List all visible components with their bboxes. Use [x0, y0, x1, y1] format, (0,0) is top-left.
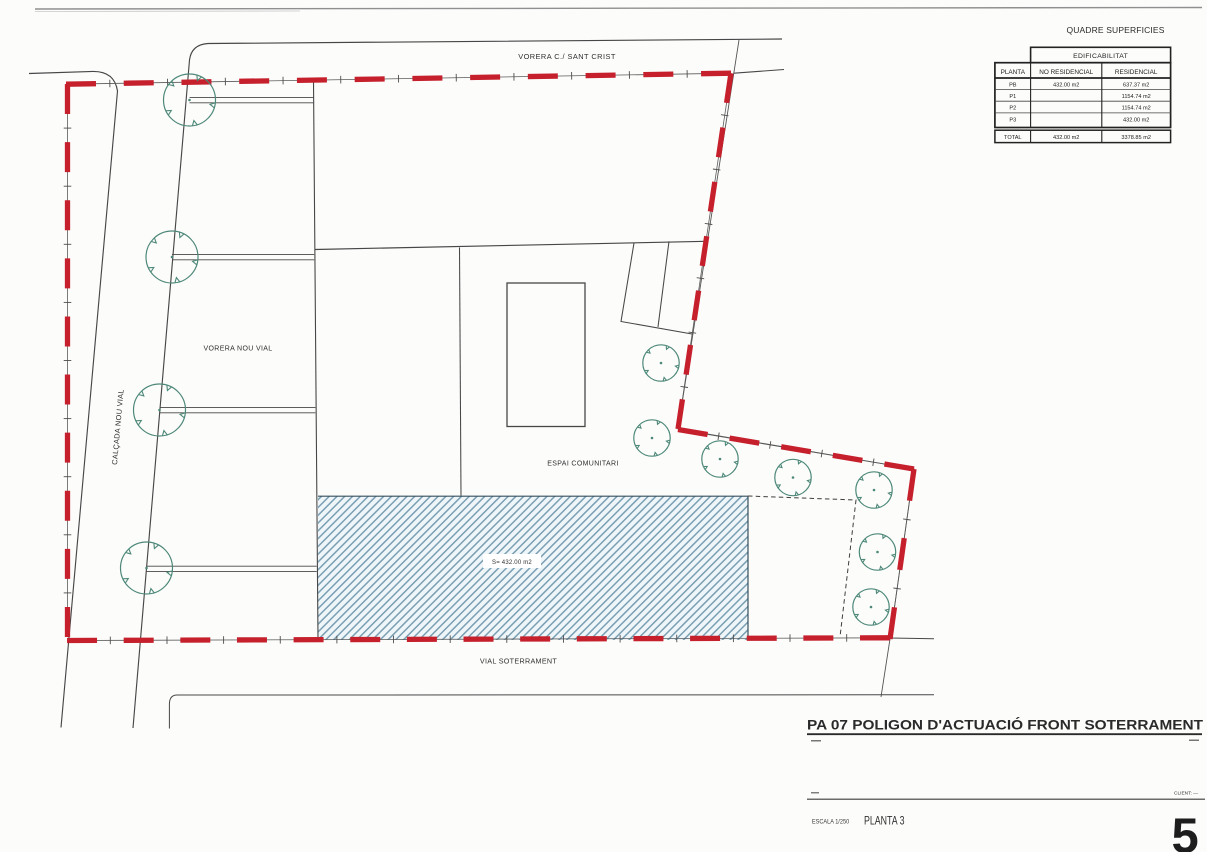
- svg-text:5: 5: [1172, 810, 1199, 852]
- svg-text:VIAL SOTERRAMENT: VIAL SOTERRAMENT: [480, 656, 558, 665]
- svg-text:ESCALA 1/250: ESCALA 1/250: [812, 819, 850, 826]
- svg-text:1154.74 m2: 1154.74 m2: [1122, 94, 1151, 100]
- svg-text:QUADRE SUPERFICIES: QUADRE SUPERFICIES: [1066, 25, 1164, 35]
- svg-text:PLANTA: PLANTA: [1001, 69, 1026, 76]
- svg-text:TOTAL: TOTAL: [1004, 135, 1022, 141]
- svg-text:ESPAI COMUNITARI: ESPAI COMUNITARI: [547, 461, 618, 468]
- svg-text:637.37 m2: 637.37 m2: [1123, 82, 1149, 88]
- svg-text:RESIDENCIAL: RESIDENCIAL: [1115, 69, 1158, 76]
- svg-text:CLIENT: —: CLIENT: —: [1174, 791, 1198, 797]
- svg-text:PLANTA 3: PLANTA 3: [864, 816, 905, 828]
- svg-text:1154.74 m2: 1154.74 m2: [1122, 106, 1151, 112]
- svg-text:P1: P1: [1009, 94, 1016, 100]
- svg-text:432.00 m2: 432.00 m2: [1053, 82, 1079, 88]
- svg-text:PA 07 POLIGON D'ACTUACIÓ FRONT: PA 07 POLIGON D'ACTUACIÓ FRONT SOTERRAME…: [807, 718, 1204, 733]
- svg-text:NO RESIDENCIAL: NO RESIDENCIAL: [1039, 69, 1093, 76]
- svg-text:S= 432.00 m2: S= 432.00 m2: [492, 560, 532, 566]
- svg-text:P2: P2: [1009, 106, 1016, 112]
- svg-text:VORERA C./ SANT CRIST: VORERA C./ SANT CRIST: [518, 52, 616, 61]
- svg-text:432.00 m2: 432.00 m2: [1053, 135, 1079, 141]
- svg-text:P3: P3: [1009, 118, 1016, 124]
- svg-text:EDIFICABILITAT: EDIFICABILITAT: [1073, 53, 1128, 60]
- svg-text:3378.85 m2: 3378.85 m2: [1121, 135, 1151, 141]
- svg-text:VORERA NOU VIAL: VORERA NOU VIAL: [203, 346, 272, 353]
- svg-text:432.00 m2: 432.00 m2: [1123, 118, 1149, 124]
- svg-text:PB: PB: [1009, 82, 1017, 88]
